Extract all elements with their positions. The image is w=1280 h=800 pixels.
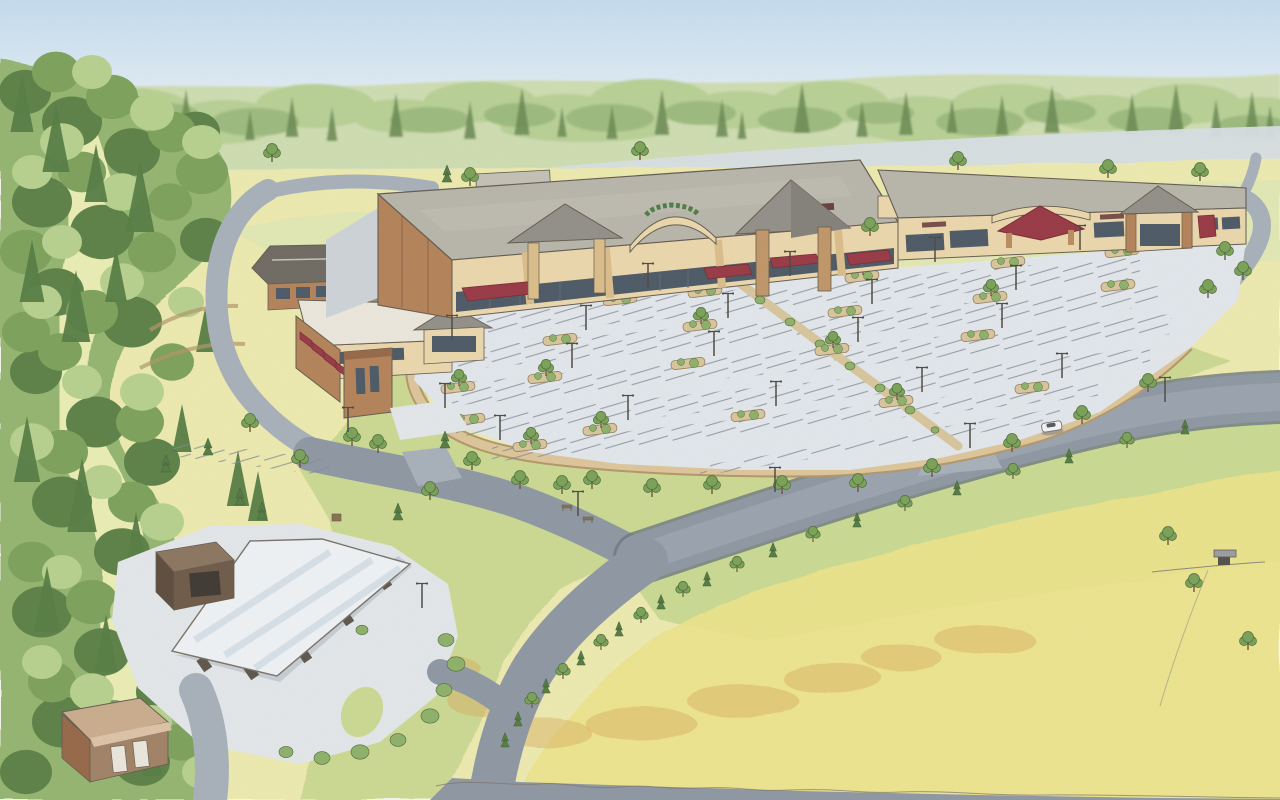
monument-sign	[332, 514, 341, 521]
forest-canopy-dark	[0, 750, 52, 794]
background-tree-mass-dark	[1024, 100, 1096, 124]
forest-canopy-mid	[66, 580, 118, 624]
ochre-wash-patch	[935, 626, 1035, 654]
median-shrub	[845, 362, 855, 370]
forest-canopy-light	[22, 645, 62, 679]
station-bush	[390, 734, 406, 747]
station-bush	[314, 752, 330, 765]
ochre-wash-patch	[862, 645, 942, 671]
forest-canopy-dark	[124, 438, 180, 486]
median-shrub	[931, 427, 939, 433]
bay-door	[111, 745, 128, 772]
forest-canopy-dark	[70, 205, 134, 259]
forest-canopy-light	[182, 125, 222, 159]
median-shrub	[755, 296, 765, 304]
station-bush	[438, 634, 454, 647]
shelter-roof	[1214, 550, 1236, 557]
ochre-wash-patch	[584, 706, 696, 740]
median-shrub	[905, 406, 915, 414]
median-shrub	[875, 384, 885, 392]
station-bush	[279, 746, 293, 757]
station-bush	[351, 745, 369, 759]
forest-canopy-light	[130, 93, 174, 130]
forest-canopy-light	[72, 55, 112, 89]
station-bush	[421, 709, 439, 723]
corner-drive	[196, 690, 212, 800]
forest-canopy-light	[42, 225, 82, 259]
site-rendering-svg	[0, 0, 1280, 800]
forest-canopy-light	[120, 373, 164, 410]
forest-canopy-mid	[128, 232, 176, 273]
median-shrub	[785, 318, 795, 326]
forest-canopy-light	[140, 503, 184, 540]
watercolor-rendering-stage	[0, 0, 1280, 800]
bay-door	[133, 740, 150, 767]
awning-post	[1068, 230, 1074, 245]
ochre-wash-patch	[686, 684, 798, 716]
background-tree-mass-dark	[390, 107, 470, 133]
kiosk-bay-door	[189, 571, 221, 598]
station-bush	[436, 684, 452, 697]
forest-canopy-light	[62, 365, 102, 399]
background-tree-mass-dark	[211, 108, 299, 136]
ochre-wash-patch	[782, 663, 882, 693]
side-awning	[1198, 215, 1216, 238]
station-bush	[356, 625, 368, 635]
station-kiosk	[156, 542, 234, 610]
awning-post	[1006, 233, 1012, 248]
forest-canopy-mid	[148, 183, 192, 220]
east-wing-glass	[432, 336, 476, 352]
station-bush	[447, 657, 465, 671]
